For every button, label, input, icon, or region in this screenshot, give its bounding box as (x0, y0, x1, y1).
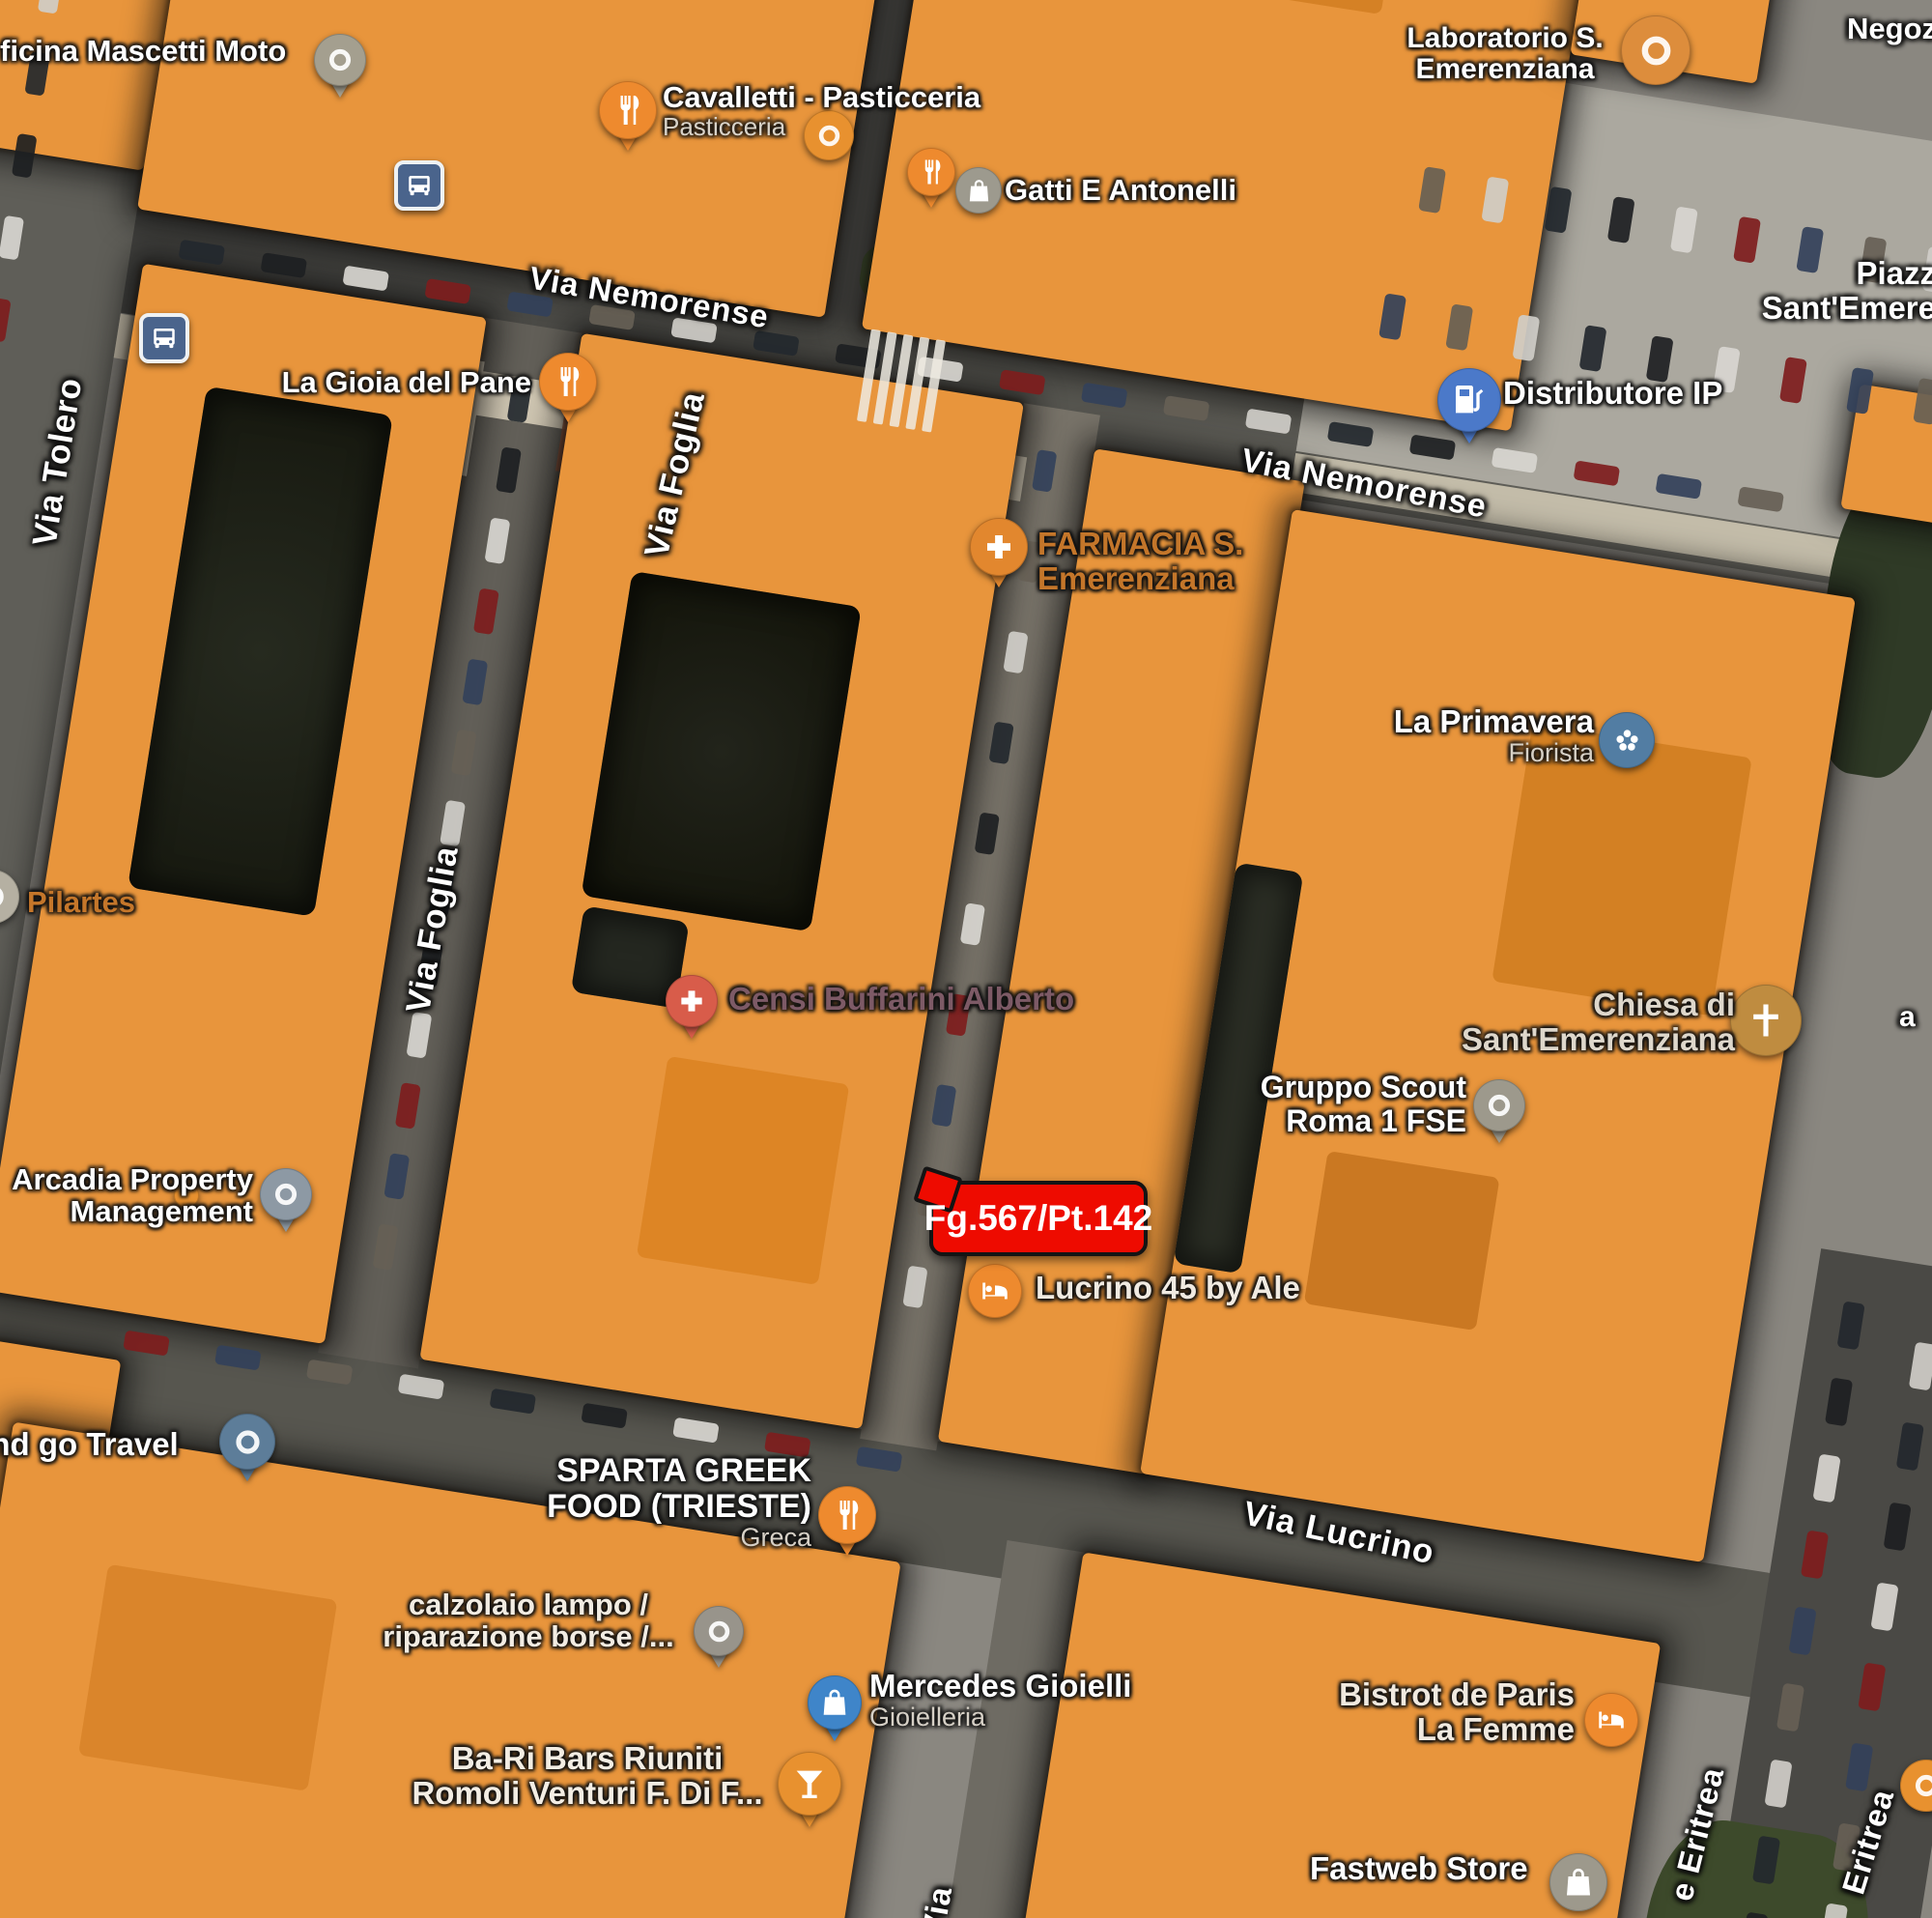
edge-text-negozi: Negozi (1847, 12, 1932, 46)
poi-laboratorio-emerenziana-label-line: Emerenziana (1379, 54, 1631, 85)
poi-sparta-greek-food-pin[interactable] (818, 1486, 876, 1544)
med-cross-icon (676, 986, 707, 1016)
poi-farmacia-emerenziana-label[interactable]: FARMACIA S.Emerenziana (1037, 527, 1308, 595)
poi-lucrino-45-pin[interactable] (968, 1264, 1022, 1318)
satellite-base (0, 0, 1932, 1918)
poi-calzolaio-lampo-label-line: calzolaio lampo / (373, 1589, 684, 1620)
poi-la-primavera-label[interactable]: La PrimaveraFiorista (1366, 704, 1594, 767)
poi-distributore-ip-label-line: Distributore IP (1503, 376, 1812, 411)
poi-mascetti-pin[interactable] (314, 34, 366, 86)
poi-chiesa-sant-emerenziana-label-line: Chiesa di (1447, 988, 1735, 1022)
poi-bistrot-de-paris-label-line: Bistrot de Paris (1329, 1677, 1575, 1712)
poi-arcadia-property-pin[interactable] (260, 1168, 312, 1220)
poi-calzolaio-lampo-pin[interactable] (694, 1606, 744, 1656)
building-roof-patch (78, 1564, 337, 1791)
poi-calzolaio-lampo-label-line: riparazione borse /... (373, 1620, 684, 1652)
donut-icon (325, 44, 355, 75)
fork-knife-icon (917, 157, 946, 186)
poi-bari-bars-label-line: Romoli Venturi F. Di F... (394, 1776, 781, 1811)
poi-arcadia-property-label-line: Arcadia Property (0, 1163, 253, 1195)
poi-gioia-del-pane-pin[interactable] (539, 353, 597, 411)
poi-fastweb-store-label-line: Fastweb Store (1310, 1851, 1567, 1886)
poi-censi-buffarini-label[interactable]: Censi Buffarini Alberto (728, 982, 1153, 1016)
poi-cavalletti-label-line: Pasticceria (663, 113, 1030, 140)
poi-bistrot-de-paris-label[interactable]: Bistrot de ParisLa Femme (1329, 1677, 1575, 1746)
cadastral-parcel-label[interactable]: Fg.567/Pt.142 (929, 1181, 1148, 1256)
satellite-map: Via NemorenseVia NemorenseVia LucrinoVia… (0, 0, 1932, 1918)
poi-gioia-del-pane-label[interactable]: La Gioia del Pane (253, 366, 531, 398)
poi-lucrino-45-label-line: Lucrino 45 by Ale (1036, 1271, 1364, 1305)
edge-text-piazza-2: Sant'Emere (1762, 290, 1932, 327)
poi-and-go-travel-label-line: and go Travel (0, 1427, 226, 1462)
poi-gruppo-scout-pin[interactable] (1473, 1079, 1525, 1131)
poi-gruppo-scout-label-line: Roma 1 FSE (1238, 1104, 1466, 1138)
poi-censi-buffarini-label-line: Censi Buffarini Alberto (728, 982, 1153, 1016)
poi-gruppo-scout-label[interactable]: Gruppo ScoutRoma 1 FSE (1238, 1071, 1466, 1137)
poi-mercedes-gioielli-label-line: Mercedes Gioielli (869, 1669, 1188, 1703)
poi-la-primavera-label-line: La Primavera (1366, 704, 1594, 739)
bus-icon (150, 324, 179, 353)
fork-knife-icon (611, 93, 645, 128)
poi-la-primavera-pin[interactable] (1599, 712, 1655, 768)
poi-calzolaio-lampo-label[interactable]: calzolaio lampo /riparazione borse /... (373, 1589, 684, 1653)
donut-icon (1635, 30, 1677, 72)
building-roof-patch (637, 1056, 850, 1285)
poi-bari-bars-label-line: Ba-Ri Bars Riuniti (394, 1741, 781, 1776)
street-label-via-partial: Via (915, 1883, 959, 1918)
poi-gatti-antonelli-label-line: Gatti E Antonelli (1005, 174, 1294, 206)
poi-gatti-antonelli-label[interactable]: Gatti E Antonelli (1005, 174, 1294, 206)
poi-gruppo-scout-label-line: Gruppo Scout (1238, 1071, 1466, 1104)
poi-mascetti-label-line: ficina Mascetti Moto (0, 35, 319, 67)
poi-distributore-ip-label[interactable]: Distributore IP (1503, 376, 1812, 411)
poi-farmacia-emerenziana-pin[interactable] (970, 518, 1028, 576)
donut-icon (270, 1179, 301, 1210)
poi-mercedes-gioielli-pin[interactable] (808, 1675, 862, 1730)
poi-and-go-travel-label[interactable]: and go Travel (0, 1427, 226, 1462)
donut-icon (1911, 1770, 1932, 1801)
cocktail-icon (790, 1764, 829, 1803)
poi-laboratorio-emerenziana-label-line: Laboratorio S. (1379, 23, 1631, 54)
poi-sparta-greek-food-label[interactable]: SPARTA GREEKFOOD (TRIESTE)Greca (493, 1453, 811, 1553)
poi-bari-bars-pin[interactable] (778, 1752, 841, 1816)
fuel-icon (1450, 381, 1489, 419)
bed-icon (1595, 1703, 1628, 1736)
poi-farmacia-emerenziana-label-line: Emerenziana (1037, 561, 1308, 596)
poi-laboratorio-emerenziana-label[interactable]: Laboratorio S.Emerenziana (1379, 23, 1631, 86)
bed-icon (979, 1274, 1011, 1307)
edge-text-a-fragment: a (1899, 1001, 1916, 1034)
fork-knife-icon (830, 1498, 865, 1532)
donut-icon (231, 1425, 265, 1459)
poi-chiesa-sant-emerenziana-label-line: Sant'Emerenziana (1447, 1022, 1735, 1057)
poi-cavalletti-label[interactable]: Cavalletti - PasticceriaPasticceria (663, 81, 1030, 141)
poi-sparta-greek-food-label-line: SPARTA GREEK (493, 1453, 811, 1489)
poi-distributore-ip-pin[interactable] (1437, 368, 1501, 432)
poi-gioia-del-pane-label-line: La Gioia del Pane (253, 366, 531, 398)
poi-bistrot-de-paris-label-line: La Femme (1329, 1712, 1575, 1747)
donut-icon (0, 880, 9, 913)
donut-icon (1484, 1090, 1515, 1121)
poi-laboratorio-emerenziana-pin[interactable] (1621, 15, 1690, 85)
bus-stop-icon[interactable] (139, 313, 189, 363)
poi-farmacia-emerenziana-label-line: FARMACIA S. (1037, 527, 1308, 561)
poi-gatti-antonelli-pin[interactable] (955, 167, 1002, 214)
edge-text-piazza-1: Piazz (1856, 255, 1932, 292)
poi-la-primavera-label-line: Fiorista (1366, 739, 1594, 767)
poi-and-go-travel-pin[interactable] (219, 1414, 275, 1470)
poi-mercedes-gioielli-label-line: Gioielleria (869, 1703, 1188, 1732)
poi-pilartes-label[interactable]: Pilartes (27, 886, 240, 918)
bag-icon (818, 1686, 851, 1719)
poi-arcadia-property-label-line: Management (0, 1195, 253, 1227)
poi-mascetti-label[interactable]: ficina Mascetti Moto (0, 35, 319, 67)
poi-pilartes-label-line: Pilartes (27, 886, 240, 918)
poi-chiesa-sant-emerenziana-label[interactable]: Chiesa diSant'Emerenziana (1447, 988, 1735, 1056)
poi-lucrino-45-label[interactable]: Lucrino 45 by Ale (1036, 1271, 1364, 1305)
bus-icon (405, 171, 434, 200)
poi-gatti-restaurant-pin[interactable] (907, 148, 955, 196)
poi-sparta-greek-food-label-line: Greca (493, 1524, 811, 1552)
poi-fastweb-store-label[interactable]: Fastweb Store (1310, 1851, 1567, 1886)
donut-icon (704, 1617, 734, 1646)
poi-arcadia-property-label[interactable]: Arcadia PropertyManagement (0, 1163, 253, 1228)
poi-censi-buffarini-pin[interactable] (666, 975, 718, 1027)
poi-bistrot-de-paris-pin[interactable] (1584, 1693, 1638, 1747)
cross-icon (1745, 999, 1787, 1042)
poi-chiesa-sant-emerenziana-pin[interactable] (1730, 985, 1802, 1056)
poi-cavalletti-label-line: Cavalletti - Pasticceria (663, 81, 1030, 113)
poi-mercedes-gioielli-label[interactable]: Mercedes GioielliGioielleria (869, 1669, 1188, 1732)
fork-knife-icon (551, 364, 585, 399)
poi-cavalletti-pin[interactable] (599, 81, 657, 139)
med-cross-icon (981, 530, 1016, 564)
bag-icon (965, 177, 993, 205)
poi-sparta-greek-food-label-line: FOOD (TRIESTE) (493, 1489, 811, 1525)
flower-icon (1610, 724, 1644, 758)
bus-stop-icon[interactable] (394, 160, 444, 211)
poi-bari-bars-label[interactable]: Ba-Ri Bars RiunitiRomoli Venturi F. Di F… (394, 1741, 781, 1810)
